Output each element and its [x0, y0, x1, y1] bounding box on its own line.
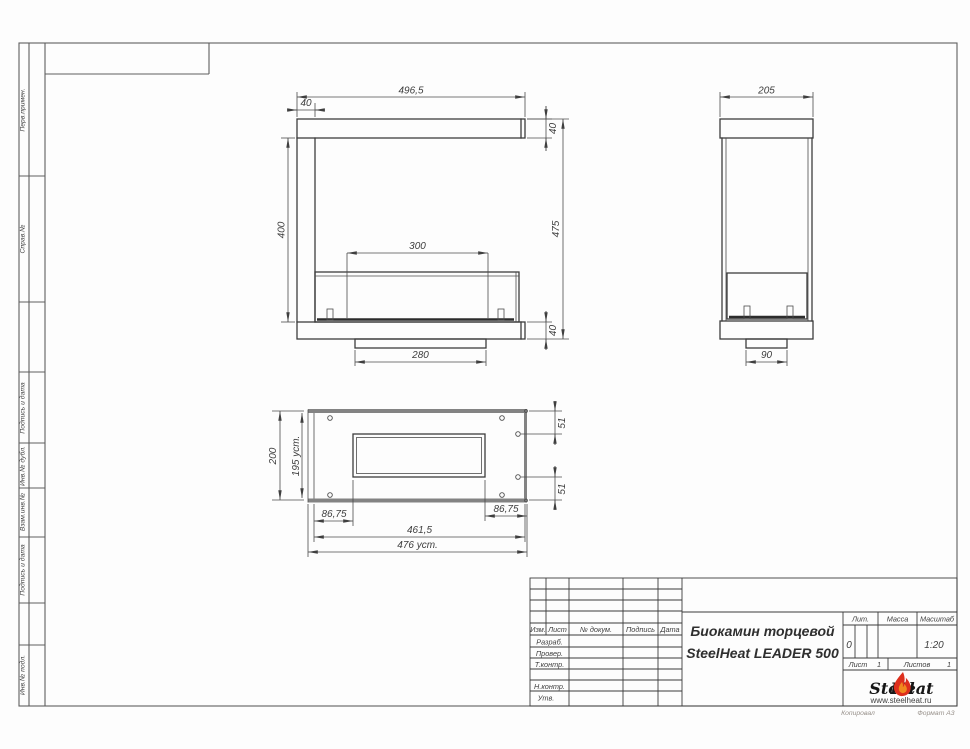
dim-front-overall-width: 496,5	[297, 86, 525, 118]
titleblock-lit-label: Лит.	[851, 615, 869, 624]
margin-label-podpis-data-2: Подпись и дата	[19, 544, 27, 596]
margin-label-inv-podl: Инв.№ подл.	[19, 655, 27, 695]
sheet-frame	[19, 43, 957, 706]
dim-label-front-burner-width: 300	[409, 241, 426, 252]
dim-label-plan-offset-bottom: 51	[557, 483, 568, 494]
titleblock-col-list: Лист	[547, 625, 567, 634]
dim-label-front-overall-width: 496,5	[398, 86, 423, 97]
document-title-line1: Биокамин торцевой	[690, 623, 835, 639]
flame-icon	[894, 672, 911, 696]
dim-front-overall-height: 475	[527, 119, 569, 339]
logo-url: www.steelheat.ru	[870, 696, 932, 705]
dim-front-left-column: 40	[287, 98, 325, 117]
titleblock-lit-value: 0	[846, 640, 852, 651]
titleblock-sheet-label: Лист	[848, 660, 868, 669]
dim-label-plan-offset-left: 86,75	[321, 509, 346, 520]
dim-label-front-top-bar: 40	[548, 123, 559, 135]
titleblock-col-ndokum: № докум.	[580, 625, 612, 634]
dim-label-front-left-column: 40	[300, 98, 312, 109]
dim-label-plan-offset-top: 51	[557, 417, 568, 428]
document-title-line2: SteelHeat LEADER 500	[686, 645, 839, 661]
plan-view	[308, 410, 527, 503]
dim-label-plan-offset-right: 86,75	[493, 504, 518, 515]
margin-stamp-labels: Перв.примен. Справ.№ Подпись и дата Инв.…	[19, 88, 27, 695]
dim-front-base-width: 280	[355, 350, 486, 366]
titleblock-sheet-value: 1	[877, 660, 881, 669]
titleblock-row-prover: Провер.	[536, 649, 563, 658]
titleblock-row-utv: Утв.	[537, 694, 555, 703]
titleblock-mass-label: Масса	[887, 615, 909, 624]
dim-label-side-overall-depth: 205	[757, 86, 775, 97]
titleblock-col-izm: Изм.	[530, 625, 546, 634]
footer-format: Формат А3	[917, 710, 954, 717]
dim-label-front-overall-height: 475	[551, 220, 562, 237]
titleblock-row-razrab: Разраб.	[536, 638, 562, 647]
titleblock-row-nkontr: Н.контр.	[534, 682, 565, 691]
titleblock-col-data: Дата	[659, 625, 679, 634]
dim-label-front-opening-height: 400	[277, 221, 288, 238]
title-block: Изм. Лист № докум. Подпись Дата Разраб. …	[530, 578, 957, 706]
drawing-canvas: Перв.примен. Справ.№ Подпись и дата Инв.…	[0, 0, 970, 749]
margin-label-sprav-no: Справ.№	[20, 224, 27, 253]
dim-front-opening-height: 400	[277, 138, 296, 322]
margin-label-inv-dubl: Инв.№ дубл.	[19, 446, 27, 486]
plan-view-dimensions: 200 195 уст. 51 51 86,75	[268, 401, 568, 557]
margin-label-perv-primen: Перв.примен.	[20, 88, 27, 131]
dim-label-plan-install-depth: 195 уст.	[291, 436, 302, 476]
dim-label-front-base-width: 280	[411, 350, 429, 361]
dim-label-side-base-depth: 90	[761, 350, 773, 361]
dim-front-top-bar: 40	[527, 106, 559, 151]
dim-label-plan-install-length: 476 уст.	[397, 540, 437, 551]
titleblock-sheets-value: 1	[947, 660, 951, 669]
titleblock-row-tkontr: Т.контр.	[535, 660, 564, 669]
dim-plan-offset-left: 86,75	[314, 480, 353, 526]
dim-label-plan-overall-depth: 200	[268, 447, 279, 465]
front-view	[297, 119, 525, 348]
footer-kopiroval: Копировал	[841, 710, 875, 717]
side-view	[720, 119, 813, 348]
steelheat-logo: Steel Heat www.steelheat.ru	[869, 672, 934, 705]
dim-side-base-depth: 90	[746, 350, 787, 366]
side-view-dimensions: 205 90	[720, 86, 813, 367]
titleblock-scale-label: Масштаб	[920, 615, 955, 624]
dim-plan-offset-top: 51	[521, 401, 568, 445]
margin-label-podpis-data-1: Подпись и дата	[19, 382, 27, 434]
dim-front-burner-width: 300	[347, 241, 488, 318]
drawing-sheet: Перв.примен. Справ.№ Подпись и дата Инв.…	[0, 0, 970, 749]
margin-label-vzam-inv: Взам.инв.№	[20, 493, 27, 531]
dim-side-overall-depth: 205	[720, 86, 813, 118]
dim-front-bottom-bar: 40	[527, 311, 559, 350]
dim-label-front-bottom-bar: 40	[548, 325, 559, 337]
titleblock-col-podpis: Подпись	[626, 625, 655, 634]
dim-label-plan-body-length: 461,5	[407, 525, 432, 536]
dim-plan-offset-bottom: 51	[521, 466, 568, 510]
titleblock-sheets-label: Листов	[903, 660, 931, 669]
titleblock-scale-value: 1:20	[924, 640, 944, 651]
top-left-stamp-box	[45, 43, 209, 74]
dim-plan-install-depth: 195 уст.	[291, 413, 302, 498]
